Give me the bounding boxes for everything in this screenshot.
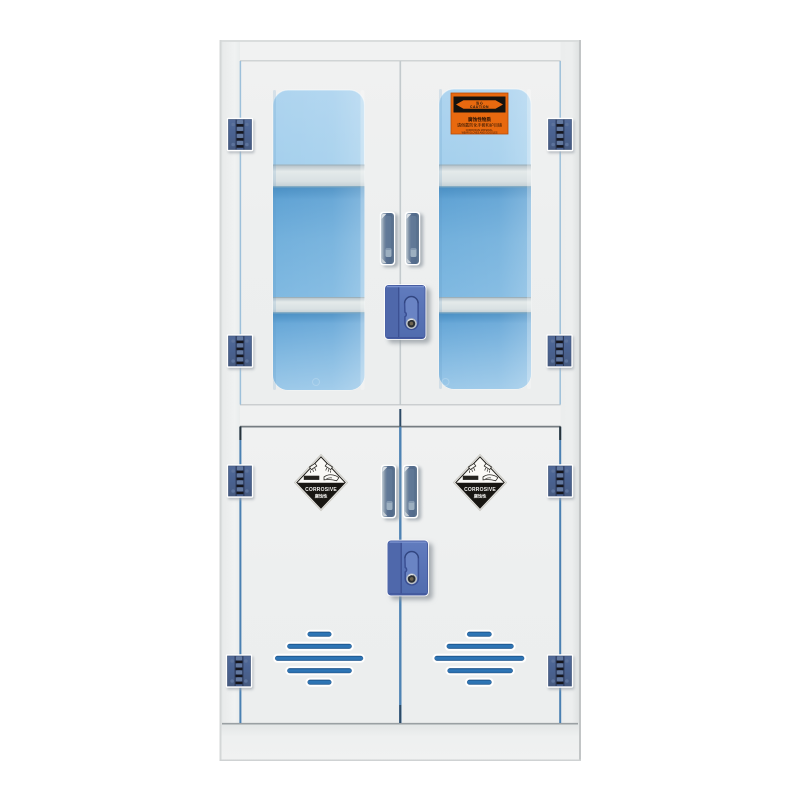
- svg-text:请佩戴防化手套和护目镜: 请佩戴防化手套和护目镜: [457, 122, 502, 128]
- svg-text:CAUTION: CAUTION: [470, 105, 489, 109]
- svg-text:WEAR GLOVES AND GOGGLES: WEAR GLOVES AND GOGGLES: [462, 132, 498, 135]
